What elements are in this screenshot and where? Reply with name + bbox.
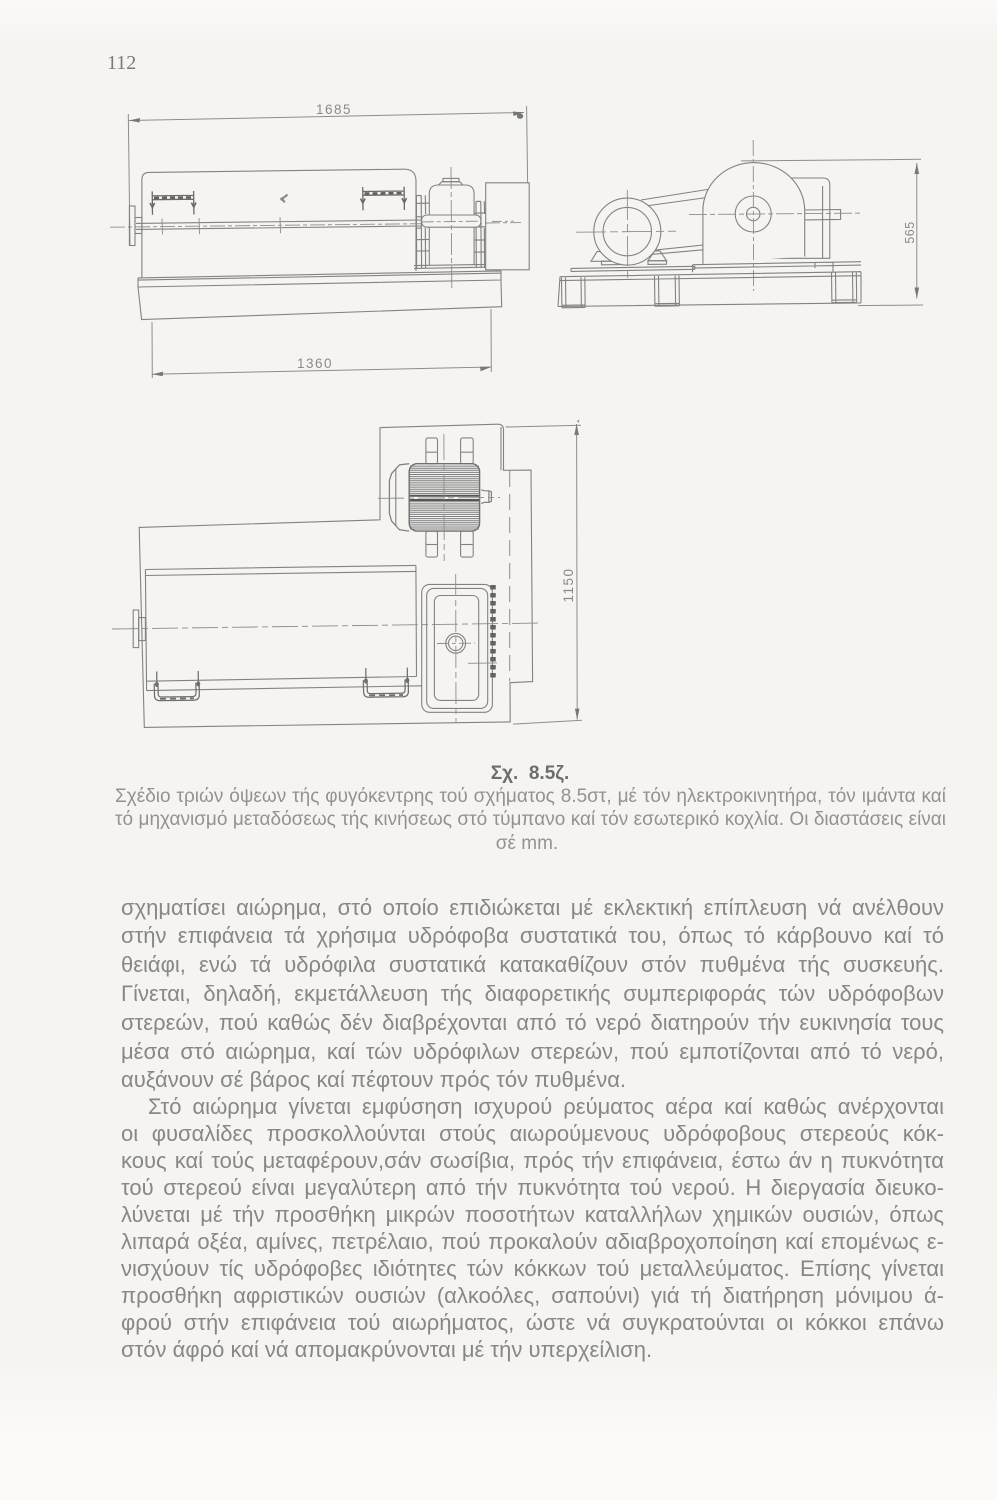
svg-text:565: 565 (903, 221, 917, 243)
svg-text:1150: 1150 (561, 567, 576, 602)
svg-text:1360: 1360 (297, 356, 333, 371)
svg-text:1685: 1685 (316, 102, 352, 117)
